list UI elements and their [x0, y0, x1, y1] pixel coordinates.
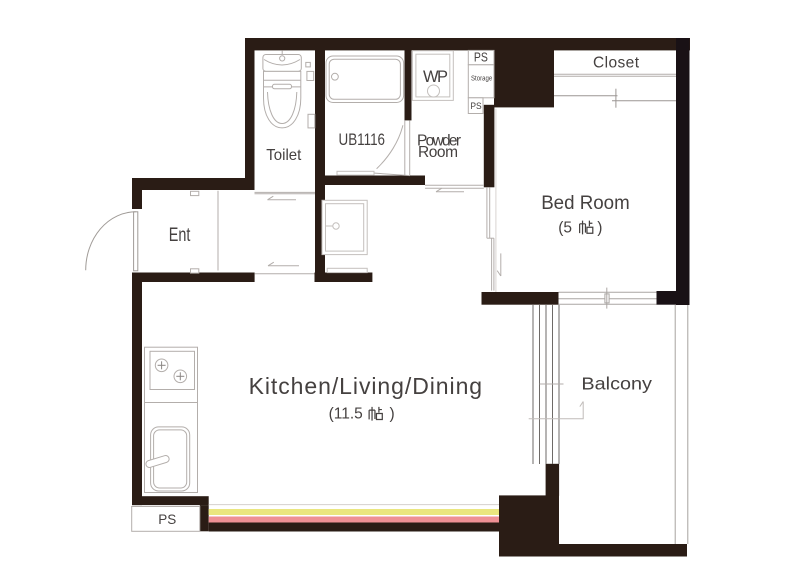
svg-text:(5: (5: [558, 219, 572, 236]
svg-text:): ): [597, 219, 602, 236]
svg-text:Toilet: Toilet: [266, 147, 302, 164]
svg-text:(11.5: (11.5: [329, 406, 363, 423]
svg-text:Storage: Storage: [471, 75, 492, 82]
svg-text:Closet: Closet: [593, 55, 640, 72]
svg-text:PS: PS: [474, 49, 488, 64]
svg-text:WP: WP: [423, 68, 448, 86]
svg-text:Balcony: Balcony: [581, 374, 652, 394]
svg-text:Room: Room: [418, 144, 458, 161]
svg-text:): ): [390, 406, 395, 423]
svg-text:Ent: Ent: [169, 225, 191, 246]
svg-text:UB1116: UB1116: [339, 131, 386, 149]
svg-text:PS: PS: [158, 512, 176, 527]
svg-text:Bed Room: Bed Room: [541, 193, 630, 214]
svg-text:Kitchen/Living/Dining: Kitchen/Living/Dining: [249, 373, 483, 399]
svg-text:PS: PS: [470, 101, 481, 111]
